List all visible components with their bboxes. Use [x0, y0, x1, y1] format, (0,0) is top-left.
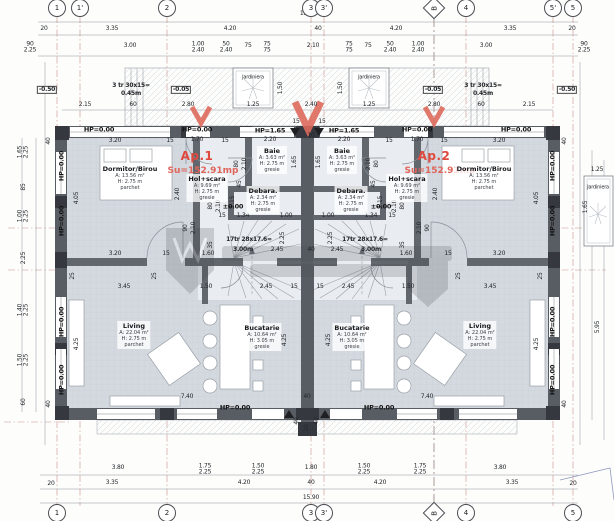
room-label: BucatarieA: 10.64 m²H: 3.05 mgresie: [332, 323, 371, 351]
dim-label: 40: [303, 394, 310, 400]
dim-label: 1.75 2.25: [199, 464, 212, 477]
dim-label: 3.80: [112, 465, 125, 471]
dim-label: 3.35: [106, 26, 119, 32]
dim-label: 40: [294, 417, 300, 424]
dim-label: 2.15: [79, 102, 92, 108]
dim-label: 7.40: [421, 394, 434, 400]
dim-label: HP=0.00: [220, 405, 250, 412]
dim-label: Jardiniera: [242, 75, 264, 80]
dim-label: 2.40: [175, 188, 181, 201]
dim-label: 1.65: [316, 156, 322, 169]
room-name: Living: [119, 322, 148, 330]
dim-label: -0.50: [557, 86, 577, 94]
dim-label: 3.20: [109, 251, 122, 257]
dim-label: 1.80: [305, 465, 318, 471]
dim-label: 40: [46, 400, 52, 407]
axis-bubble-text: 3': [321, 4, 327, 12]
dim-label: 15: [440, 138, 447, 144]
dim-label: 2.40: [305, 102, 318, 108]
room-detail: parchet: [457, 185, 512, 191]
room-name: Hol+scara: [388, 175, 425, 183]
dim-label: 4.20: [238, 480, 251, 486]
dim-label: 1.00: [322, 213, 335, 219]
dim-label: 3.35: [504, 26, 517, 32]
room-label: BaieA: 3.63 m²H: 2.75 mgresie: [327, 146, 357, 174]
room-name: Baie: [329, 147, 355, 155]
axis-bubble-text: 2: [165, 509, 169, 517]
room-detail: parchet: [103, 185, 158, 191]
dim-label: HP=0.00: [501, 127, 531, 134]
dim-label: 3.35: [506, 480, 519, 486]
dim-label: 90 2.25: [24, 42, 37, 55]
dim-label: 35: [208, 241, 214, 248]
room-label: Debara.A: 2.34 m²H: 2.75 mgresie: [247, 186, 280, 214]
room-name: Dormitor/Birou: [457, 165, 512, 173]
dim-label: HP=1.65: [329, 128, 359, 135]
room-label: BaieA: 3.63 m²H: 2.75 mgresie: [257, 146, 287, 174]
dim-label: 25: [538, 272, 544, 279]
axis-bubble-4: 4: [457, 0, 475, 17]
dim-label: 20: [569, 481, 576, 487]
axis-bubble-text: 3: [309, 4, 313, 12]
dim-label: HP=0.00: [402, 127, 432, 134]
dim-label: HP=0.00: [59, 206, 66, 236]
dim-label: 90: [425, 224, 431, 231]
axis-bubble-text: 2: [165, 4, 169, 12]
dim-label: 2.15: [523, 102, 536, 108]
dim-label: 10: [307, 133, 314, 139]
room-detail: gresie: [337, 207, 366, 213]
dim-label: 1.65 2.25: [18, 146, 31, 159]
dim-label: 40: [307, 247, 314, 253]
dim-label: HP=0.00: [550, 307, 557, 337]
axis-bubble-2: 2: [158, 0, 176, 17]
dim-label: 1.00 2.25: [18, 210, 31, 223]
room-detail: gresie: [244, 344, 279, 350]
axis-bubble-4: 4: [457, 504, 475, 521]
dim-label: 25: [456, 272, 462, 279]
dim-label: 2.20: [264, 137, 277, 143]
dim-label: 2.10: [191, 222, 197, 235]
dim-label: 4.05: [534, 192, 540, 205]
axis-bubble-text: 4: [464, 4, 468, 12]
dim-label: HP=1.65: [255, 128, 285, 135]
axis-bubble-text: 5: [571, 509, 575, 517]
dim-label: 1.50: [278, 82, 284, 95]
room-detail: gresie: [259, 167, 285, 173]
dim-label: 15: [218, 213, 225, 219]
axis-bubble-3': 3': [315, 0, 333, 17]
floor-plan-drawing: Ap.1 Su=152.91mp Ap.2 Su=152.91mp 15.902…: [0, 0, 614, 521]
dim-label: 2.25: [21, 252, 27, 265]
room-name: Dormitor/Birou: [103, 165, 158, 173]
dim-label: ±0.00: [371, 204, 391, 211]
axis-bubble-1': 1': [71, 0, 89, 17]
axis-bubble-5: 5: [564, 504, 582, 521]
dim-label: 2.80: [182, 102, 195, 108]
axis-bubble-text: 1: [55, 509, 59, 517]
dim-label: 1.70: [191, 137, 204, 143]
dim-label: 45: [237, 180, 243, 187]
dim-label: 3.45: [118, 284, 131, 290]
dim-label: 3.00: [124, 43, 137, 49]
dim-label: 4.25: [282, 334, 288, 347]
dim-label: 35: [400, 241, 406, 248]
axis-bubble-b: B: [423, 502, 446, 521]
dim-label: 15.90: [303, 495, 319, 501]
axis-bubble-2: 2: [158, 504, 176, 521]
dim-label: 5.95: [595, 321, 601, 334]
axis-bubble-5: 5: [564, 0, 582, 17]
axis-bubble-text: B: [430, 511, 438, 516]
dim-label: HP=0.00: [550, 151, 557, 181]
dim-label: HP=0.00: [364, 405, 394, 412]
dim-label: 1.60: [400, 251, 413, 257]
axis-bubble-text: 1: [55, 4, 59, 12]
dim-label: 2.45: [271, 247, 284, 253]
dim-label: 1.65: [292, 156, 298, 169]
dim-label: 2.10: [417, 222, 423, 235]
dim-label: 4.05: [74, 192, 80, 205]
room-detail: gresie: [249, 207, 278, 213]
dim-label: 17tr 28x17.6=: [342, 237, 388, 243]
dim-label: 20: [47, 481, 54, 487]
dim-label: 20: [40, 26, 47, 32]
dim-label: HP=0.00: [59, 307, 66, 337]
dim-label: 3 tr 30x15=: [464, 83, 502, 89]
axis-bubble-1: 1: [48, 504, 66, 521]
dim-label: 40: [562, 137, 568, 144]
apartment1-label: Ap.1: [181, 149, 214, 163]
dim-label: HP=0.00: [84, 127, 114, 134]
dim-label: HP=0.00: [59, 151, 66, 181]
dim-label: 2.10: [242, 158, 248, 171]
dim-label: 3.00m: [361, 247, 381, 253]
dim-label: 1.50 2.25: [358, 464, 371, 477]
dim-label: 2.80: [428, 102, 441, 108]
dim-label: 1.75 2.25: [414, 464, 427, 477]
dim-label: 1.60: [202, 251, 215, 257]
axis-bubble-3': 3': [315, 504, 333, 521]
dim-label: 2.20: [338, 137, 351, 143]
dim-label: -0.05: [423, 86, 443, 94]
room-detail: parchet: [465, 342, 494, 348]
dim-label: 60: [21, 398, 27, 405]
dim-label: 2.25: [280, 232, 286, 245]
dim-label: 15: [316, 284, 323, 290]
axis-bubble-text: 5: [571, 4, 575, 12]
dim-label: 1.70: [411, 137, 424, 143]
dim-label: 17tr 28x17.6=: [226, 237, 272, 243]
axis-bubble-text: 1': [77, 4, 83, 12]
dim-label: 3 tr 30x15=: [112, 83, 150, 89]
dim-label: 50 2.40: [220, 42, 233, 55]
dim-label: 1.00 2.40: [412, 42, 425, 55]
dim-label: 1.50: [338, 82, 344, 95]
dim-label: 4.25: [74, 338, 80, 351]
dim-label: ±0.00: [223, 204, 243, 211]
dim-label: 60: [477, 102, 484, 108]
dim-label: 4.20: [374, 480, 387, 486]
dim-label: 50 2.40: [384, 42, 397, 55]
dim-label: 15: [166, 138, 173, 144]
dim-label: 15: [388, 213, 395, 219]
dim-label: HP=0.00: [550, 206, 557, 236]
dim-label: 1.00 2.40: [192, 42, 205, 55]
dim-label: 60: [129, 102, 136, 108]
dim-label: 80: [374, 160, 380, 167]
axis-bubble-b: B: [423, 0, 446, 19]
dim-label: 10: [304, 424, 310, 431]
dim-label: 75: [244, 43, 251, 49]
dim-label: 1.50: [200, 284, 213, 290]
apartment2-label: Ap.2: [418, 149, 451, 163]
dim-label: 3.35: [106, 480, 119, 486]
axis-bubble-text: B: [430, 6, 438, 11]
dim-label: HP=0.00: [59, 365, 66, 395]
dim-label: 4.20: [224, 26, 237, 32]
dim-label: 40: [46, 137, 52, 144]
dim-label: 4.25: [534, 338, 540, 351]
dim-label: 1.50 2.25: [18, 354, 31, 367]
dim-label: 0.45m: [121, 91, 141, 97]
dim-label: 1.00: [280, 213, 293, 219]
dim-label: 40: [314, 26, 321, 32]
dim-label: 20: [568, 26, 575, 32]
dim-label: HP=0.00: [550, 365, 557, 395]
dim-label: 4.25: [326, 334, 332, 347]
axis-bubble-text: 3: [309, 509, 313, 517]
room-label: LivingA: 22.04 m²H: 2.75 mparchet: [463, 321, 496, 349]
dim-label: 15: [221, 138, 228, 144]
dim-label: 40: [307, 480, 314, 486]
room-label: Dormitor/BirouA: 13.56 m²H: 2.75 mparche…: [101, 164, 160, 192]
dim-label: 3.00m: [233, 247, 253, 253]
room-label: BucatarieA: 10.64 m²H: 3.05 mgresie: [242, 323, 281, 351]
dim-label: 85: [21, 183, 27, 190]
room-detail: gresie: [329, 167, 355, 173]
dim-label: 90 2.25: [578, 42, 591, 55]
dim-label: 40: [562, 400, 568, 407]
room-detail: gresie: [388, 195, 425, 201]
dim-label: 1.50: [402, 284, 415, 290]
room-label: Hol+scaraA: 9.69 m²H: 2.75 mgresie: [186, 174, 227, 202]
dim-label: -0.05: [171, 86, 191, 94]
dim-label: 75 75: [263, 42, 270, 55]
dim-label: 1.50 2.25: [252, 464, 265, 477]
axis-bubble-text: 5': [550, 4, 556, 12]
dim-label: 2.45: [342, 284, 355, 290]
dim-label: 15: [290, 284, 297, 290]
dim-label: 1.65: [583, 201, 589, 214]
dim-label: 0.45m: [473, 91, 493, 97]
dim-label: 75: [364, 43, 371, 49]
dim-label: -0.50: [37, 86, 57, 94]
axis-bubble-1: 1: [48, 0, 66, 17]
dim-label: 15: [318, 119, 325, 125]
room-label: Debara.A: 2.34 m²H: 2.75 mgresie: [335, 186, 368, 214]
axis-bubble-text: 4: [464, 509, 468, 517]
dim-label: 25: [70, 272, 76, 279]
room-name: Bucatarie: [244, 324, 279, 332]
dim-label: 2.45: [260, 284, 273, 290]
room-detail: gresie: [334, 344, 369, 350]
room-name: Debara.: [337, 187, 366, 195]
dim-label: 90: [183, 224, 189, 231]
dim-label: 2.45: [331, 247, 344, 253]
room-name: Living: [465, 322, 494, 330]
dim-label: 15: [385, 138, 392, 144]
room-name: Debara.: [249, 187, 278, 195]
dim-label: 1.40 2.25: [18, 304, 31, 317]
dim-label: 2.25: [328, 232, 334, 245]
room-name: Hol+scara: [188, 175, 225, 183]
dim-label: Jardiniera: [358, 75, 380, 80]
dim-label: 1.25: [591, 167, 604, 173]
dim-label: 2.40: [433, 188, 439, 201]
dim-label: 7.40: [181, 394, 194, 400]
dim-label: Jardiniera: [587, 185, 609, 190]
dim-label: 15: [292, 119, 299, 125]
dim-label: 2.10: [366, 158, 372, 171]
dim-label: 1.25: [247, 102, 260, 108]
dim-label: 3.20: [109, 138, 122, 144]
dim-label: 45: [371, 180, 377, 187]
dim-label: 3.00: [480, 43, 493, 49]
room-detail: gresie: [188, 195, 225, 201]
dim-label: 3.45: [484, 284, 497, 290]
dim-label: 25: [152, 272, 158, 279]
dim-label: 3.20: [493, 251, 506, 257]
dim-label: 15: [444, 251, 451, 257]
dim-label: 15: [162, 251, 169, 257]
dim-label: 3.80: [494, 465, 507, 471]
room-label: Hol+scaraA: 9.69 m²H: 2.75 mgresie: [386, 174, 427, 202]
axis-bubble-5': 5': [544, 0, 562, 17]
dim-label: 75 75: [345, 42, 352, 55]
dim-label: 80: [208, 202, 214, 209]
dim-label: HP=0.00: [182, 127, 212, 134]
room-label: LivingA: 22.04 m²H: 2.75 mparchet: [117, 321, 150, 349]
room-name: Bucatarie: [334, 324, 369, 332]
dim-label: 3.20: [493, 138, 506, 144]
dim-label: 4.20: [390, 26, 403, 32]
room-name: Baie: [259, 147, 285, 155]
dim-label: 1.25: [363, 102, 376, 108]
dim-label: 2.10: [307, 43, 320, 49]
annotation-layer: Ap.1 Su=152.91mp Ap.2 Su=152.91mp 15.902…: [0, 0, 614, 521]
dim-label: 40: [314, 417, 320, 424]
dim-label: 80: [400, 202, 406, 209]
room-label: Dormitor/BirouA: 13.56 m²H: 2.75 mparche…: [455, 164, 514, 192]
room-detail: parchet: [119, 342, 148, 348]
axis-bubble-text: 3': [321, 509, 327, 517]
dim-label: 80: [234, 160, 240, 167]
